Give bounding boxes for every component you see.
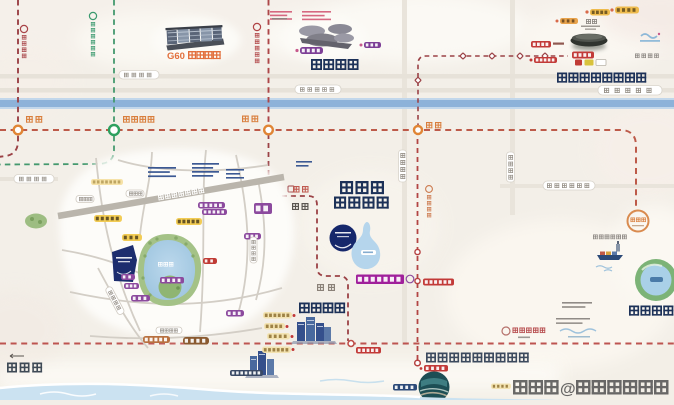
svg-text:G60: G60: [167, 51, 185, 62]
svg-text:@: @: [560, 381, 576, 398]
